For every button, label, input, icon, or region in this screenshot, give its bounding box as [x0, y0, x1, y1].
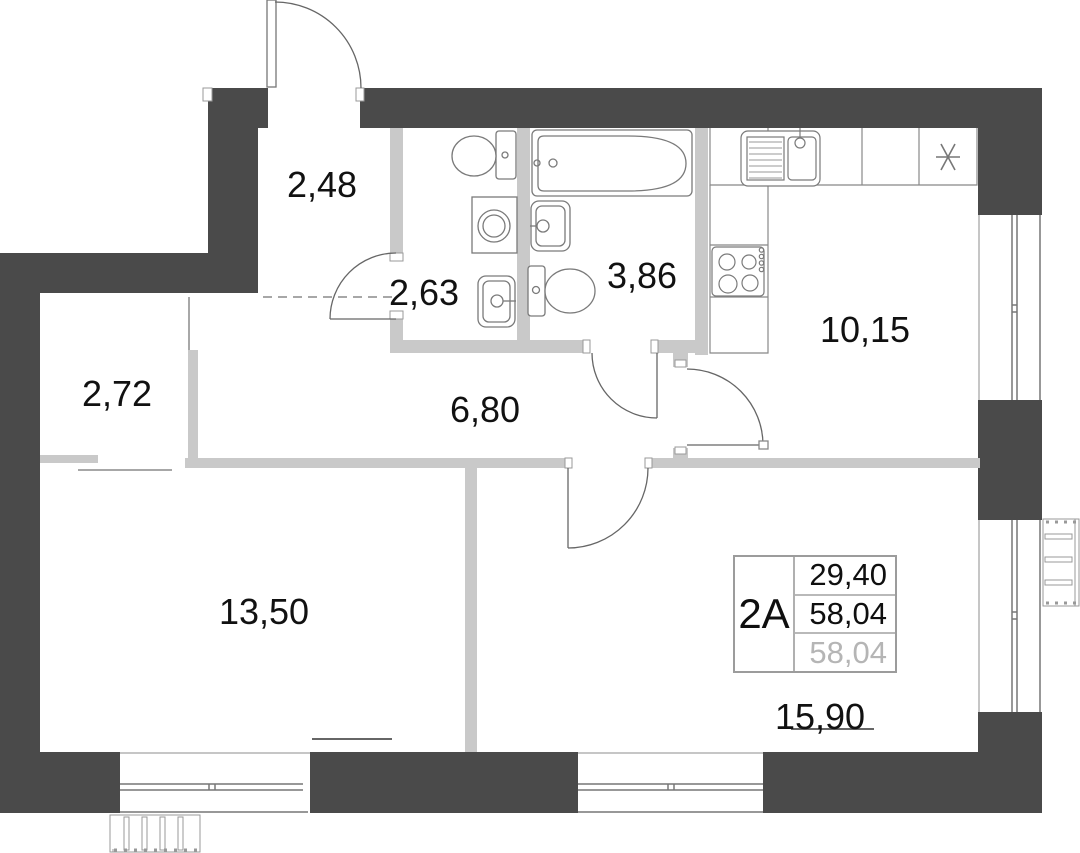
wc-door — [330, 253, 396, 319]
unit-area-total-with-balcony: 58,04 — [795, 634, 895, 671]
ac-basket-icon — [1043, 519, 1079, 606]
unit-area-values: 29,40 58,04 58,04 — [795, 557, 895, 671]
entry-door — [267, 0, 361, 88]
window-living-room-side — [1012, 520, 1040, 712]
sink-icon — [478, 276, 516, 327]
toilet-icon — [528, 266, 595, 316]
window-kitchen — [1012, 215, 1040, 400]
floor-plan-drawing — [0, 0, 1080, 853]
door-arc-icon — [687, 369, 763, 445]
room-area-kitchen: 10,15 — [820, 309, 910, 351]
room-area-bathroom: 3,86 — [607, 255, 677, 297]
stove-icon — [712, 247, 764, 296]
window-bedroom — [120, 784, 308, 812]
bathtub-icon — [532, 130, 692, 196]
room-area-hallway: 2,48 — [287, 164, 357, 206]
room-area-wardrobe: 2,72 — [82, 373, 152, 415]
wc-fixtures — [452, 131, 517, 327]
room-area-living-room: 15,90 — [775, 696, 865, 738]
door-arc-icon — [568, 468, 648, 548]
room-area-corridor: 6,80 — [450, 389, 520, 431]
unit-info-table: 2А 29,40 58,04 58,04 — [733, 555, 897, 673]
unit-area-total: 58,04 — [795, 596, 895, 635]
unit-name: 2А — [735, 557, 795, 671]
unit-area-living: 29,40 — [795, 557, 895, 596]
floor-plan: 2,48 2,63 3,86 10,15 2,72 6,80 13,50 15,… — [0, 0, 1080, 853]
ac-basket-icon — [110, 815, 200, 852]
window-living-room — [578, 784, 763, 812]
door-arc-icon — [592, 353, 657, 418]
kitchen-sink-icon — [741, 128, 820, 186]
bathroom-door — [592, 353, 657, 418]
cooker-asterisk-icon — [936, 144, 960, 170]
room-area-bedroom: 13,50 — [219, 591, 309, 633]
kitchen-door — [687, 369, 768, 449]
door-arc-icon — [275, 2, 361, 88]
living-room-door — [568, 468, 648, 548]
room-area-wc: 2,63 — [389, 272, 459, 314]
toilet-icon — [452, 131, 516, 179]
door-arc-icon — [330, 253, 396, 319]
sink-icon — [530, 201, 570, 251]
washing-machine-icon — [472, 197, 517, 253]
